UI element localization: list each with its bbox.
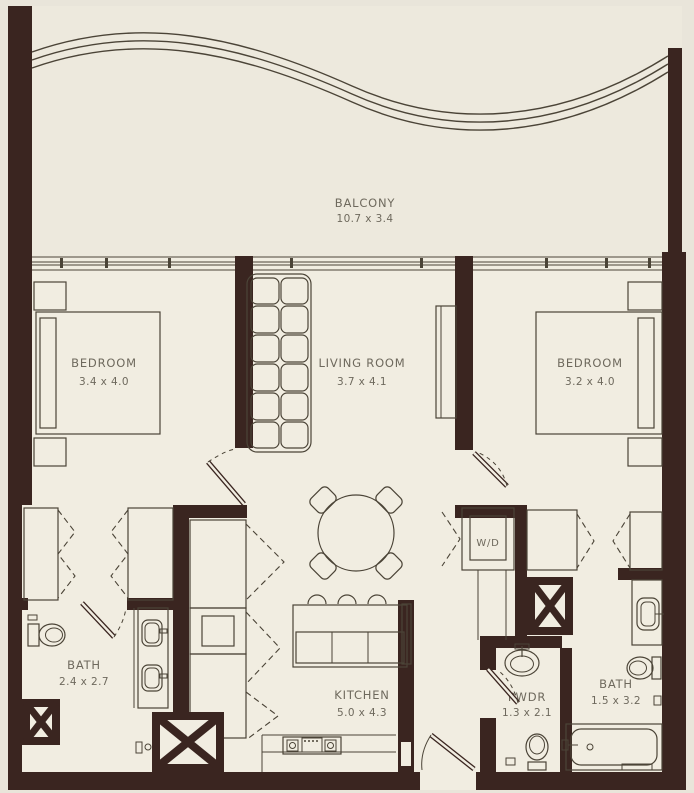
room-label-kitchen: KITCHEN [334, 688, 389, 702]
room-dims-living: 3.7 x 4.1 [337, 376, 387, 388]
wd-label: W/D [476, 538, 499, 549]
room-label-bedroom2: BEDROOM [557, 356, 623, 370]
entry-threshold [420, 772, 476, 790]
room-dims-bath1: 2.4 x 2.7 [59, 676, 109, 688]
room-dims-kitchen: 5.0 x 4.3 [337, 707, 387, 719]
shaft-x [156, 716, 220, 768]
floor-plan-page: BEDROOM 3.4 x 4.0 LIVING ROOM 3.7 x 4.1 … [0, 0, 694, 793]
room-dims-balcony: 10.7 x 3.4 [337, 213, 394, 225]
room-label-bath2: BATH [599, 677, 633, 691]
room-dims-bedroom2: 3.2 x 4.0 [565, 376, 615, 388]
shaft-x [26, 703, 56, 741]
room-dims-bath2: 1.5 x 3.2 [591, 695, 641, 707]
room-label-balcony: BALCONY [335, 196, 396, 210]
room-label-bedroom1: BEDROOM [71, 356, 137, 370]
floor-plan: BEDROOM 3.4 x 4.0 LIVING ROOM 3.7 x 4.1 … [0, 0, 694, 793]
room-dims-bedroom1: 3.4 x 4.0 [79, 376, 129, 388]
room-dims-pwdr: 1.3 x 2.1 [502, 707, 552, 719]
room-label-living: LIVING ROOM [318, 356, 405, 370]
wall-niche [401, 742, 411, 766]
room-label-bath1: BATH [67, 658, 101, 672]
shaft-x [531, 581, 569, 631]
